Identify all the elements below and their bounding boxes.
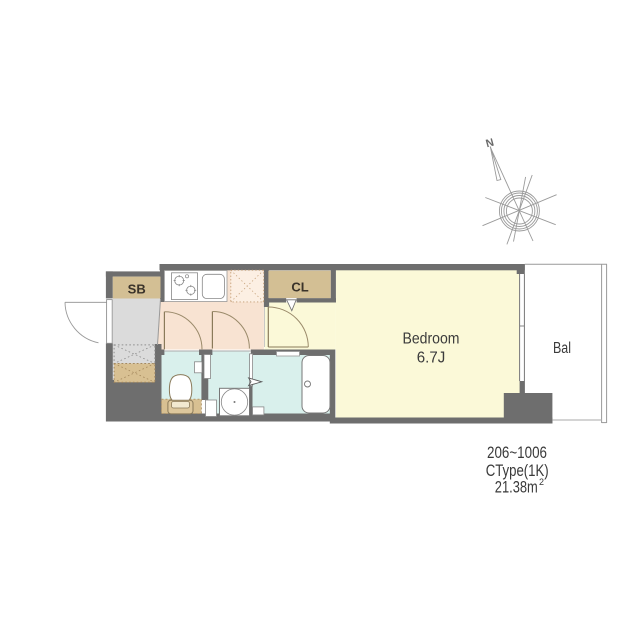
svg-text:Bedroom: Bedroom: [403, 331, 460, 348]
svg-text:21.38m: 21.38m: [495, 477, 538, 496]
svg-text:6.7J: 6.7J: [417, 350, 446, 367]
svg-text:206~1006: 206~1006: [487, 443, 547, 462]
svg-text:SB: SB: [128, 282, 146, 297]
svg-text:CL: CL: [291, 280, 308, 295]
svg-text:Bal: Bal: [553, 340, 571, 357]
svg-text:2: 2: [539, 477, 544, 487]
